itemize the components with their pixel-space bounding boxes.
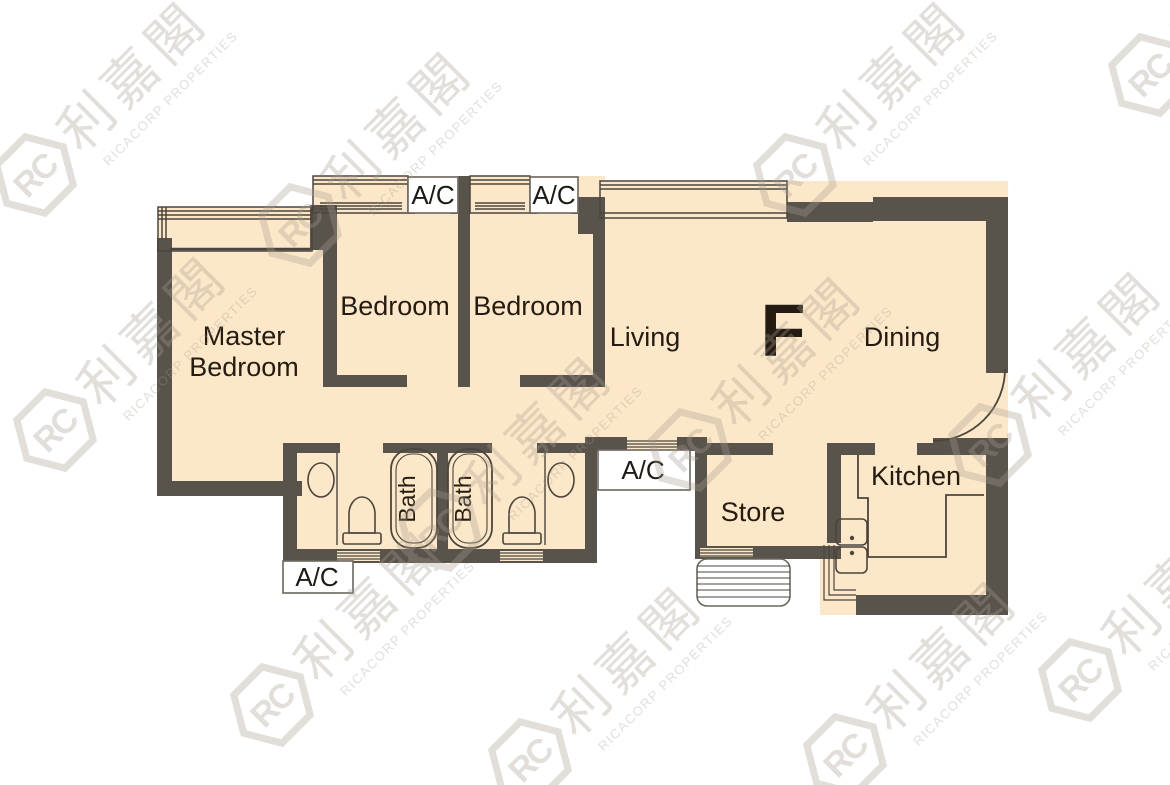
room-label-bedroom1: Bedroom [340,291,450,321]
room-label-master-line2: Bedroom [189,352,299,382]
floor-plan-page: RC 利嘉閣 RICACORP PROPERTIES [0,0,1170,785]
ac-label: A/C [411,180,454,210]
ac-label: A/C [532,180,575,210]
room-label-store: Store [721,497,786,527]
stairs-platform [697,559,790,606]
ac-label: A/C [295,562,338,592]
floor-plan: RC 利嘉閣 RICACORP PROPERTIES [0,0,1170,785]
ac-box-top-1: A/C [408,177,458,213]
room-label-kitchen: Kitchen [871,461,961,491]
room-label-living: Living [610,322,681,352]
ac-box-bottom-left: A/C [283,561,353,593]
ac-box-top-2: A/C [530,177,578,213]
room-label-bedroom2: Bedroom [473,291,583,321]
